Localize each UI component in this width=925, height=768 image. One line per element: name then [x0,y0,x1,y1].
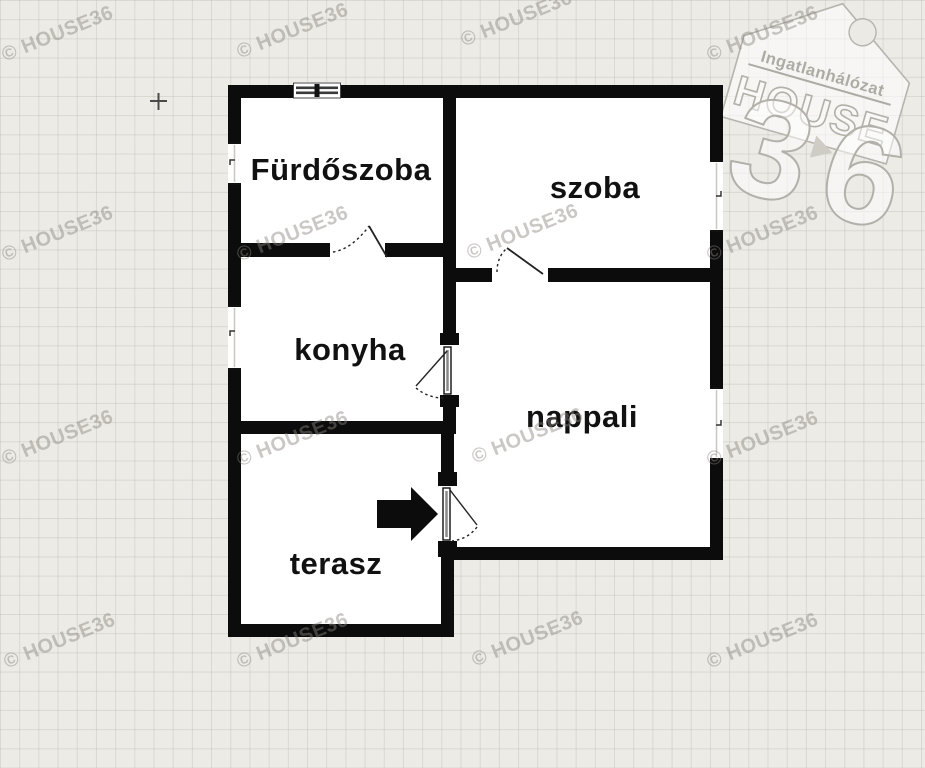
wall-terasz-right-1 [441,434,454,472]
room-label-szoba: szoba [550,170,640,206]
wall-right-3 [710,282,723,387]
wall-nappali-bottom [441,547,723,560]
watermark-tile: © HOUSE36 [469,607,587,673]
room-label-furdoszoba: Fürdőszoba [251,152,432,188]
wall-right-4 [710,460,723,560]
wall-right-2 [710,232,723,268]
watermark-tile: © HOUSE36 [704,609,822,675]
door-jamb-konyha-bottom [440,395,459,407]
watermark-tile: © HOUSE36 [0,2,117,68]
floorplan-screenshot: Ingatlanhálózat HOUSE 3 6 [0,0,925,768]
watermark-tile: © HOUSE36 [0,202,117,268]
watermark-tile: © HOUSE36 [234,0,352,64]
door-gap-szoba [492,268,548,282]
watermark-tile: © HOUSE36 [1,609,119,675]
window-furdoszoba-top [293,82,341,101]
window-konyha-left [228,305,241,370]
window-nappali-right [710,387,723,460]
wall-terasz-bottom [228,624,454,637]
window-szoba-right [710,160,723,232]
door-jamb-terasz-top [438,472,457,486]
wall-middle-vertical [443,97,456,333]
wall-furdoszoba-bottom-right [385,243,443,257]
door-gap-furdoszoba [330,243,385,257]
wall-right-1 [710,97,723,160]
wall-left-3 [228,370,241,637]
wall-szoba-bottom-right [548,268,723,282]
room-label-terasz: terasz [290,546,383,582]
room-label-konyha: konyha [294,332,406,368]
wall-left-1 [228,97,241,142]
watermark-tile: © HOUSE36 [0,406,117,472]
door-gap-konyha-nappali [441,345,455,395]
wall-konyha-bottom [228,421,456,434]
crosshair-icon [150,93,167,110]
window-furdoszoba-left [228,142,241,185]
door-gap-terasz-nappali [439,486,455,541]
room-label-nappali: nappali [526,399,638,435]
door-jamb-konyha-top [440,333,459,345]
room-terasz-floor [241,433,442,625]
wall-furdoszoba-bottom-left [228,243,330,257]
watermark-tile: © HOUSE36 [458,0,576,52]
wall-szoba-bottom-left [443,268,492,282]
